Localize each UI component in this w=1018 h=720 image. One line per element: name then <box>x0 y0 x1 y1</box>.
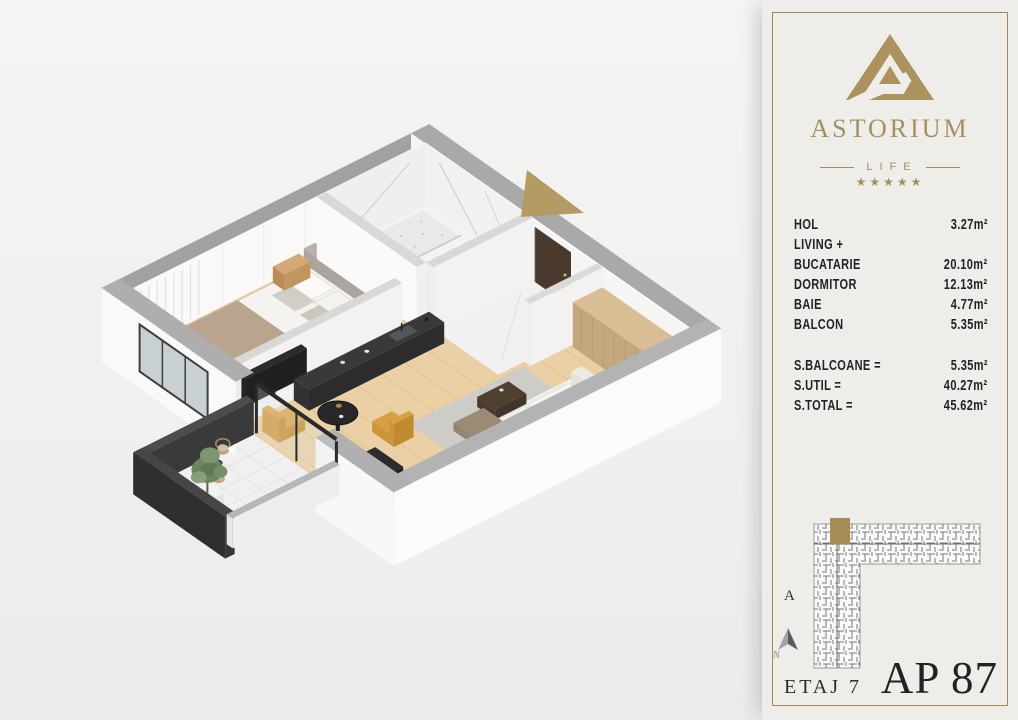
room-row: BALCON 5.35m² <box>794 315 988 335</box>
room-row: DORMITOR 12.13m² <box>794 275 988 295</box>
page: ASTORIUM LIFE ★★★★★ HOL 3.27m² LIVING + … <box>0 0 1018 720</box>
totals-list: S.BALCOANE = 5.35m² S.UTIL = 40.27m² S.T… <box>794 356 988 416</box>
total-row: S.TOTAL = 45.62m² <box>794 396 988 416</box>
brand-name: ASTORIUM <box>762 114 1018 144</box>
floor-plan-3d-render <box>0 0 762 720</box>
room-row: BAIE 4.77m² <box>794 295 988 315</box>
apartment-isometric-plan <box>0 0 762 720</box>
info-card: ASTORIUM LIFE ★★★★★ HOL 3.27m² LIVING + … <box>762 0 1018 720</box>
compass-arrow-icon <box>788 628 798 650</box>
compass-north-label: N <box>772 650 781 661</box>
room-area-list: HOL 3.27m² LIVING + BUCATARIE 20.10m² DO… <box>794 215 988 335</box>
room-row: HOL 3.27m² <box>794 215 988 235</box>
highlighted-apartment-unit <box>830 518 850 544</box>
astorium-logo-icon <box>842 30 938 106</box>
five-stars-icon: ★★★★★ <box>762 175 1018 189</box>
brand-subtitle: LIFE <box>866 161 917 173</box>
brand-subtitle-row: LIFE <box>762 161 1018 173</box>
left-rule <box>820 167 854 168</box>
room-row: BUCATARIE 20.10m² <box>794 255 988 275</box>
section-label: A <box>784 588 795 604</box>
total-row: S.UTIL = 40.27m² <box>794 376 988 396</box>
right-rule <box>926 167 960 168</box>
entrance-arrow-icon <box>521 170 584 217</box>
room-row: LIVING + <box>794 235 988 255</box>
total-row: S.BALCOANE = 5.35m² <box>794 356 988 376</box>
card-footer: ETAJ 7 AP 87 <box>784 652 998 704</box>
apartment-number: AP 87 <box>881 652 998 704</box>
floor-label: ETAJ 7 <box>784 676 862 699</box>
